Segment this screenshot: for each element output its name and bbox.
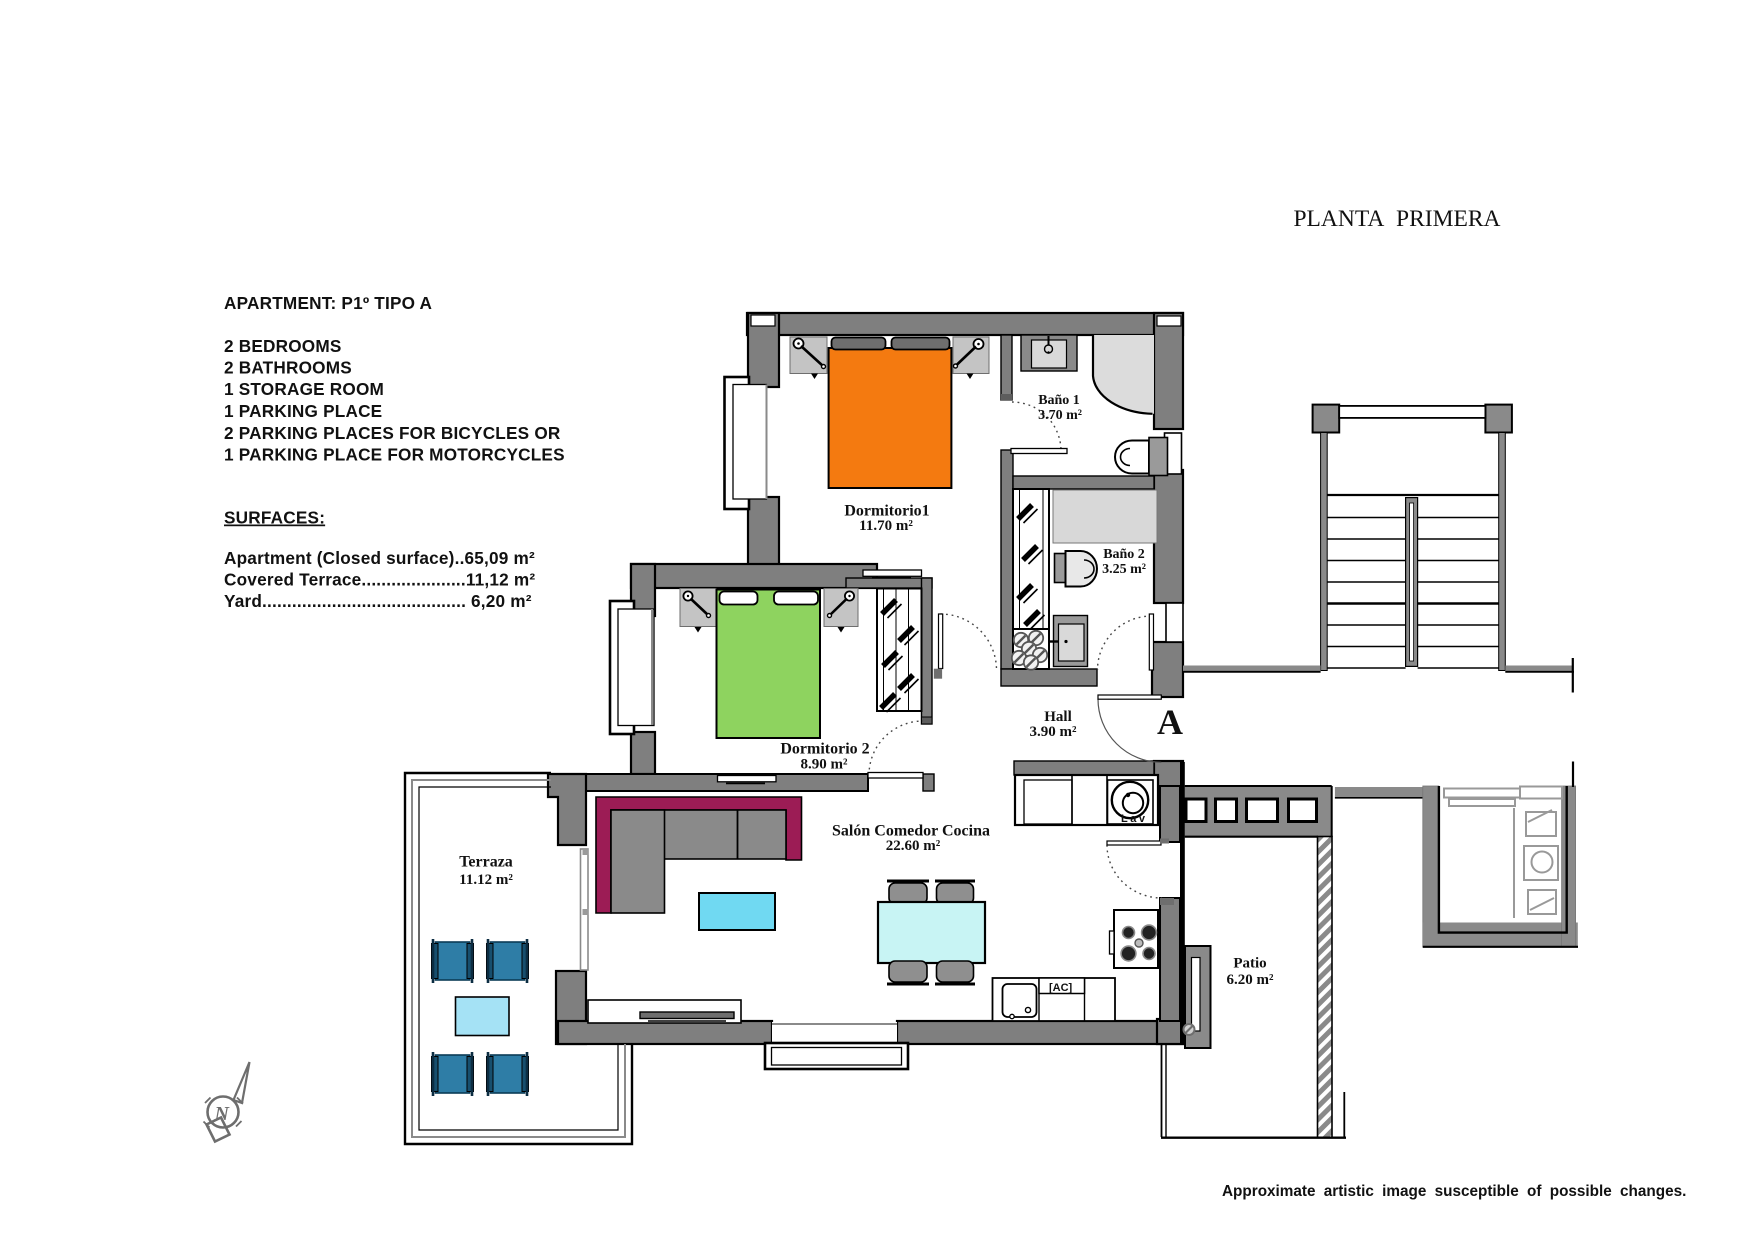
svg-text:6.20 m²: 6.20 m² [1227,972,1274,988]
svg-text:Hall: Hall [1044,709,1072,725]
svg-text:Terraza: Terraza [459,854,513,871]
svg-text:2 BATHROOMS: 2 BATHROOMS [224,358,352,378]
svg-text:1 STORAGE ROOM: 1 STORAGE ROOM [224,379,384,399]
svg-text:1 PARKING PLACE FOR MOTORCYCLE: 1 PARKING PLACE FOR MOTORCYCLES [224,445,565,465]
svg-text:1 PARKING PLACE: 1 PARKING PLACE [224,401,382,421]
svg-text:Yard..........................: Yard....................................… [224,591,532,611]
svg-text:Covered Terrace...............: Covered Terrace.....................11,1… [224,570,535,590]
svg-text:Apartment (Closed surface)..65: Apartment (Closed surface)..65,09 m² [224,548,535,568]
svg-text:3.70 m²: 3.70 m² [1038,408,1082,423]
svg-text:11.70 m²: 11.70 m² [859,518,913,534]
svg-text:Lav: Lav [1121,813,1146,825]
svg-text:3.25 m²: 3.25 m² [1102,562,1146,577]
svg-text:Baño 2: Baño 2 [1103,547,1145,562]
svg-text:A: A [1157,702,1183,742]
svg-text:PLANTA PRIMERA: PLANTA PRIMERA [1293,206,1500,232]
svg-text:Baño 1: Baño 1 [1038,393,1080,408]
svg-text:Salón Comedor Cocina: Salón Comedor Cocina [832,823,990,840]
svg-text:Patio: Patio [1233,956,1266,972]
svg-text:APARTMENT: P1º TIPO A: APARTMENT: P1º TIPO A [224,293,432,313]
svg-text:[AC]: [AC] [1049,982,1073,994]
svg-text:Approximate artistic image sus: Approximate artistic image susceptible o… [1222,1183,1686,1200]
svg-text:Dormitorio1: Dormitorio1 [844,503,929,520]
svg-text:N: N [214,1103,231,1125]
svg-text:SURFACES:: SURFACES: [224,508,325,528]
svg-text:3.90 m²: 3.90 m² [1030,724,1077,740]
svg-text:Dormitorio 2: Dormitorio 2 [780,741,869,758]
svg-text:2 PARKING PLACES FOR BICYCLES: 2 PARKING PLACES FOR BICYCLES OR [224,423,561,443]
svg-text:2 BEDROOMS: 2 BEDROOMS [224,336,342,356]
svg-text:8.90 m²: 8.90 m² [801,757,848,773]
svg-text:22.60 m²: 22.60 m² [886,838,941,854]
svg-text:11.12 m²: 11.12 m² [459,872,513,888]
